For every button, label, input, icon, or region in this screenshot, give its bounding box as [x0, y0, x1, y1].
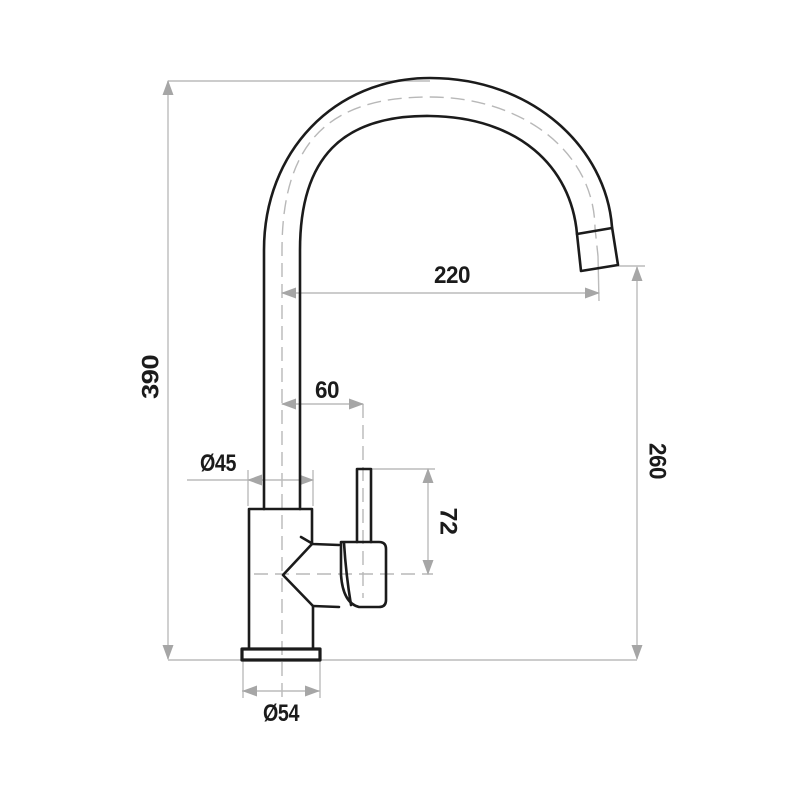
dim-label-spout-reach: 220 [434, 262, 470, 289]
dim-label-overall-height: 390 [138, 355, 165, 399]
dim-label-body-diameter: Ø45 [200, 450, 236, 477]
tap-dimension-drawing: 390 220 260 60 Ø45 72 Ø54 [0, 0, 800, 800]
dim-label-spout-outlet-height: 260 [644, 443, 671, 479]
ext-line-220-right [598, 256, 599, 301]
dim-label-handle-lever-height: 72 [435, 508, 462, 535]
drawing-canvas: 390 220 260 60 Ø45 72 Ø54 [0, 0, 800, 800]
dim-label-base-diameter: Ø54 [263, 700, 300, 727]
dim-label-handle-offset: 60 [315, 377, 339, 404]
drawing-background [0, 0, 800, 800]
